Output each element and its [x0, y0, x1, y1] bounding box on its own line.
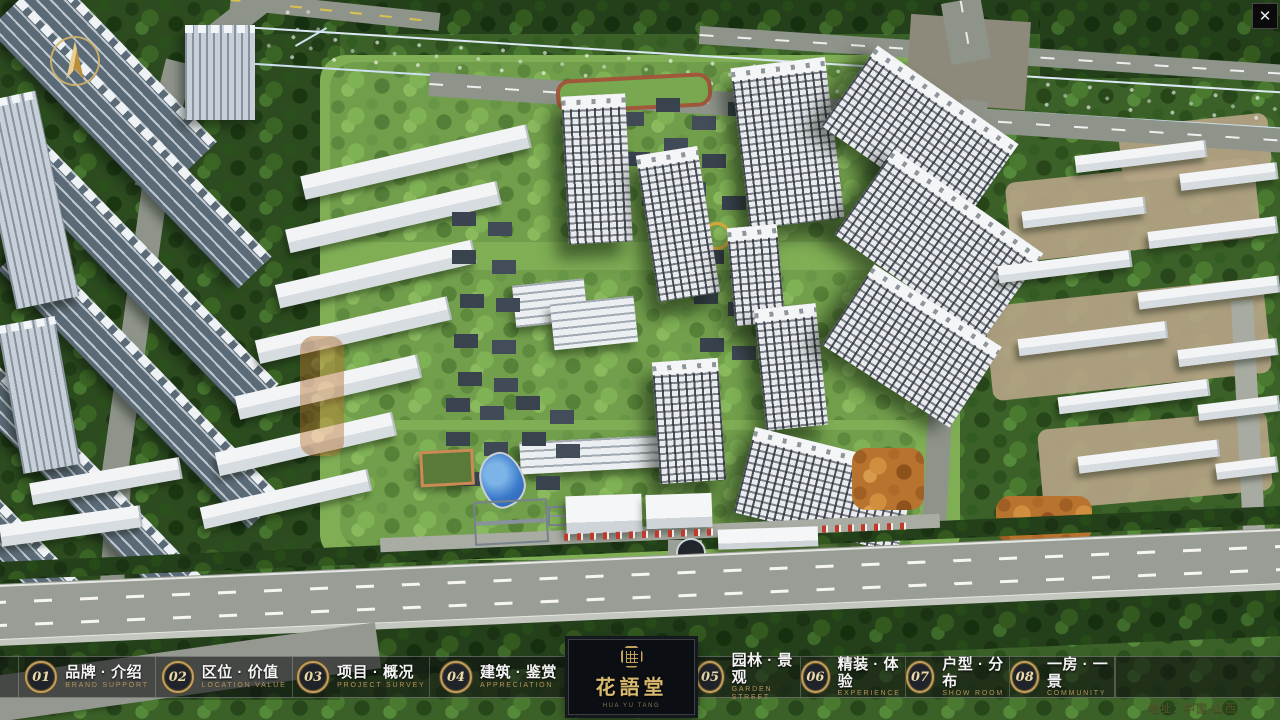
building-midrise	[550, 296, 638, 351]
nav-item-title: 一房 · 一景	[1047, 656, 1114, 691]
trees	[852, 448, 924, 510]
nav-item-architecture[interactable]: 04 建筑 · 鉴赏 APPRECIATION	[429, 657, 567, 697]
building-tower	[652, 358, 726, 484]
nav-number-badge: 08	[1010, 661, 1038, 693]
entrance-colonnade	[718, 526, 819, 549]
building-tower	[185, 25, 255, 120]
nav-number-badge: 03	[297, 661, 329, 693]
nav-left-group: 01 品牌 · 介绍 BRAND SUPPORT 02 区位 · 价值 LOCA…	[18, 657, 568, 697]
nav-item-brand-intro[interactable]: 01 品牌 · 介绍 BRAND SUPPORT	[18, 657, 155, 697]
nav-item-subtitle: LOCATION VALUE	[202, 682, 287, 690]
nav-item-subtitle: BRAND SUPPORT	[65, 682, 149, 690]
nav-number-badge: 02	[162, 661, 194, 693]
brand-tagline: HUA YU TANG	[603, 703, 661, 709]
aerial-map-viewport[interactable]	[0, 0, 1280, 720]
nav-item-project-survey[interactable]: 03 项目 · 概况 PROJECT SURVEY	[292, 657, 429, 697]
nav-spacer	[0, 657, 18, 697]
entrance-canopy	[645, 493, 712, 529]
nav-item-subtitle: SHOW ROOM	[942, 690, 1009, 698]
nav-item-location-value[interactable]: 02 区位 · 价值 LOCATION VALUE	[155, 657, 292, 697]
nav-number-badge: 07	[906, 661, 934, 693]
bottom-nav-bar: 01 品牌 · 介绍 BRAND SUPPORT 02 区位 · 价值 LOCA…	[0, 656, 1280, 698]
houses-cluster	[452, 212, 476, 226]
green-roof-building	[419, 449, 475, 488]
sales-presentation-window: ✕ 01 品牌 · 介绍 BRAND SUPPORT 02 区位 · 价值 LO…	[0, 0, 1280, 720]
compass-icon[interactable]	[50, 36, 100, 86]
entrance-canopy	[565, 494, 642, 535]
nav-number-badge: 06	[801, 661, 829, 693]
nav-item-subtitle: PROJECT SURVEY	[337, 682, 425, 690]
nav-number-badge: 05	[696, 661, 723, 693]
houses-cluster	[446, 398, 470, 412]
sales-center-roof	[473, 498, 549, 546]
nav-item-title: 品牌 · 介绍	[65, 664, 149, 681]
trees	[300, 336, 344, 456]
nav-item-fine-decoration[interactable]: 06 精装 · 体验 EXPERIENCE	[800, 657, 905, 697]
nav-number-badge: 01	[25, 661, 57, 693]
nav-item-title: 精装 · 体验	[838, 656, 905, 691]
brand-seal-icon	[621, 646, 643, 668]
nav-right-group: 05 园林 · 景观 GARDEN STREET 06 精装 · 体验 EXPE…	[695, 657, 1115, 697]
north-arrow-icon	[62, 41, 88, 79]
nav-item-title: 区位 · 价值	[202, 664, 287, 681]
building-tower	[561, 93, 633, 244]
nav-item-title: 建筑 · 鉴赏	[480, 664, 557, 681]
nav-item-subtitle: GARDEN STREET	[732, 686, 801, 702]
nav-item-subtitle: APPRECIATION	[480, 682, 557, 690]
nav-item-garden-landscape[interactable]: 05 园林 · 景观 GARDEN STREET	[695, 657, 800, 697]
nav-spacer	[1115, 657, 1280, 697]
nav-number-badge: 04	[440, 661, 472, 693]
nav-item-subtitle: COMMUNITY	[1047, 690, 1114, 698]
brand-logo-panel[interactable]: 花語堂 HUA YU TANG	[568, 639, 696, 715]
nav-item-title: 户型 · 分布	[942, 656, 1009, 691]
building-tower	[754, 303, 828, 431]
nav-item-title: 项目 · 概况	[337, 664, 425, 681]
nav-item-floor-plans[interactable]: 07 户型 · 分布 SHOW ROOM	[905, 657, 1010, 697]
address-text: 地址：中国·山西	[1148, 700, 1237, 716]
close-button[interactable]: ✕	[1252, 3, 1278, 29]
nav-item-title: 园林 · 景观	[732, 652, 801, 687]
brand-name: 花語堂	[596, 671, 668, 700]
nav-item-room-view[interactable]: 08 一房 · 一景 COMMUNITY	[1009, 657, 1115, 697]
nav-item-subtitle: EXPERIENCE	[838, 690, 905, 698]
building-tower	[730, 57, 844, 229]
